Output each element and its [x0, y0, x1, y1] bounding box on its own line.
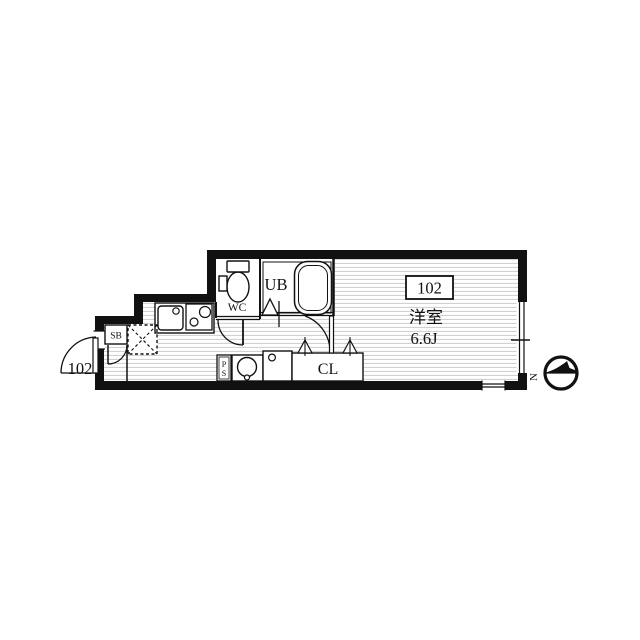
entrance-unit-number: 102 — [68, 359, 93, 378]
compass-north-label: N — [528, 373, 540, 381]
ub-label: UB — [265, 275, 288, 294]
floor-plan: WC UB SB — [0, 0, 640, 640]
room-number: 102 — [417, 279, 442, 298]
room-type-label: 洋室 — [409, 308, 443, 327]
ps-label-p: P — [222, 360, 227, 369]
room-size-label: 6.6J — [410, 329, 438, 348]
sb-label: SB — [110, 332, 122, 342]
sink-icon — [158, 306, 183, 330]
stove-icon — [186, 304, 212, 330]
cl-label: CL — [318, 361, 338, 378]
wc-label: WC — [228, 302, 247, 314]
washbasin-icon — [263, 351, 292, 381]
pipe-space: P S — [217, 355, 231, 381]
washing-machine-icon — [232, 355, 263, 381]
bathtub-icon — [295, 262, 332, 315]
kitchen — [155, 303, 214, 333]
ps-label-s: S — [222, 369, 226, 378]
vent — [482, 381, 505, 391]
